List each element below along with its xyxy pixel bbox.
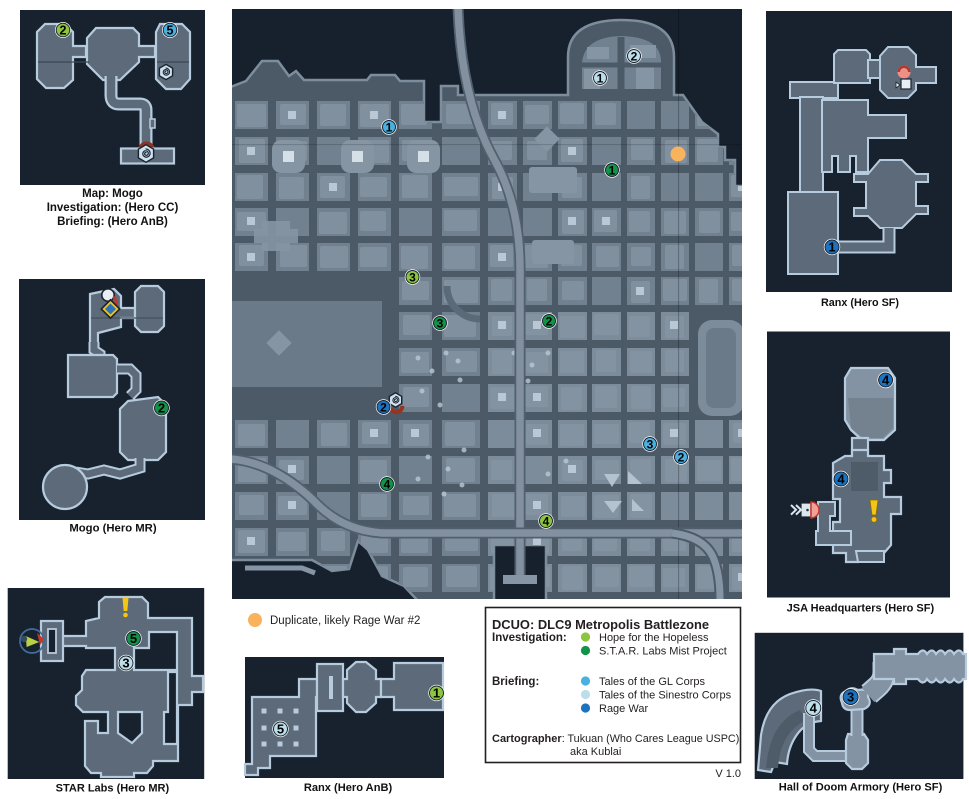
svg-text:STAR Labs (Hero MR): STAR Labs (Hero MR)	[56, 782, 170, 794]
svg-text:Briefing:: Briefing:	[492, 676, 539, 688]
svg-text:4: 4	[543, 514, 550, 528]
svg-text:3: 3	[847, 690, 854, 705]
svg-text:4: 4	[882, 373, 890, 388]
svg-text:Investigation: (Hero CC): Investigation: (Hero CC)	[47, 202, 179, 214]
svg-text:2: 2	[546, 314, 553, 328]
svg-text:S.T.A.R. Labs Mist Project: S.T.A.R. Labs Mist Project	[599, 646, 727, 658]
svg-text:Map: Mogo: Map: Mogo	[82, 188, 143, 200]
svg-text:Mogo (Hero MR): Mogo (Hero MR)	[69, 523, 156, 535]
svg-text:Cartographer: Tukuan (Who Care: Cartographer: Tukuan (Who Cares League U…	[492, 733, 739, 745]
svg-text:DCUO: DLC9 Metropolis Battlezo: DCUO: DLC9 Metropolis Battlezone	[492, 617, 709, 632]
svg-text:Rage War: Rage War	[599, 703, 648, 715]
svg-text:2: 2	[380, 400, 387, 414]
svg-text:1: 1	[386, 120, 393, 134]
svg-text:2: 2	[631, 49, 638, 63]
svg-text:Tales of the Sinestro Corps: Tales of the Sinestro Corps	[599, 690, 732, 702]
svg-text:5: 5	[277, 722, 284, 737]
svg-text:Ranx (Hero AnB): Ranx (Hero AnB)	[304, 782, 393, 794]
svg-text:Hope for the Hopeless: Hope for the Hopeless	[599, 632, 709, 644]
svg-text:1: 1	[433, 686, 440, 701]
svg-text:2: 2	[158, 401, 165, 416]
svg-text:4: 4	[384, 477, 391, 491]
svg-text:3: 3	[122, 656, 129, 671]
svg-text:3: 3	[647, 437, 654, 451]
svg-text:Briefing: (Hero AnB): Briefing: (Hero AnB)	[57, 216, 168, 228]
svg-text:5: 5	[167, 24, 174, 38]
svg-text:Duplicate, likely Rage War #2: Duplicate, likely Rage War #2	[270, 615, 420, 627]
svg-text:2: 2	[678, 450, 685, 464]
svg-text:JSA Headquarters (Hero SF): JSA Headquarters (Hero SF)	[787, 602, 935, 614]
svg-text:1: 1	[597, 71, 604, 85]
svg-text:Hall of Doom Armory (Hero SF): Hall of Doom Armory (Hero SF)	[779, 781, 943, 793]
svg-text:3: 3	[409, 270, 416, 284]
svg-text:Ranx (Hero SF): Ranx (Hero SF)	[821, 297, 899, 309]
svg-text:1: 1	[828, 240, 835, 255]
svg-text:4: 4	[810, 701, 818, 716]
svg-text:aka Kublai: aka Kublai	[570, 746, 621, 758]
svg-text:Tales of the GL Corps: Tales of the GL Corps	[599, 676, 705, 688]
svg-text:V 1.0: V 1.0	[715, 768, 741, 780]
svg-text:2: 2	[60, 24, 67, 38]
svg-text:1: 1	[609, 163, 616, 177]
svg-text:3: 3	[437, 316, 444, 330]
svg-text:Investigation:: Investigation:	[492, 632, 567, 644]
svg-text:5: 5	[130, 631, 137, 646]
svg-text:4: 4	[837, 472, 845, 487]
